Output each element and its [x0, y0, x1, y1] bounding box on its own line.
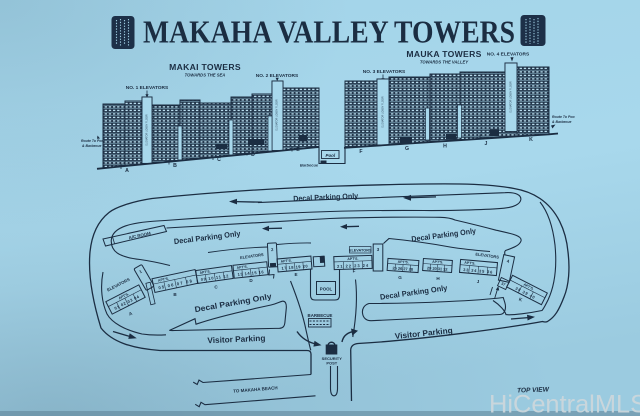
svg-text:G: G: [405, 146, 409, 152]
svg-text:NO. 3 ELEVATORS: NO. 3 ELEVATORS: [363, 69, 406, 75]
svg-text:Pool: Pool: [326, 153, 336, 158]
svg-text:BARBECUE: BARBECUE: [308, 313, 333, 318]
svg-text:MAUKA TOWERS: MAUKA TOWERS: [406, 49, 481, 59]
svg-text:F: F: [359, 149, 362, 155]
svg-text:TOWARDS THE SEA: TOWARDS THE SEA: [185, 73, 226, 78]
svg-text:E: E: [296, 147, 300, 153]
svg-text:E: E: [294, 272, 297, 277]
svg-text:& Barbecue: & Barbecue: [552, 120, 572, 124]
svg-text:H: H: [443, 144, 447, 150]
svg-text:Route To Poo: Route To Poo: [552, 115, 575, 119]
svg-text:C: C: [217, 157, 221, 163]
svg-text:Barbecue: Barbecue: [300, 163, 319, 168]
svg-text:A: A: [125, 168, 129, 174]
svg-text:ELEVATOR LOBBY FLOOR: ELEVATOR LOBBY FLOOR: [276, 99, 279, 130]
svg-text:HiCentralMLS: HiCentralMLS: [489, 391, 640, 416]
svg-text:B: B: [173, 163, 177, 169]
svg-text:F: F: [353, 269, 356, 274]
svg-text:POST: POST: [326, 361, 337, 366]
svg-text:ELEVATORS: ELEVATORS: [349, 249, 372, 253]
svg-text:D: D: [251, 152, 255, 158]
svg-text:APT'S.: APT'S.: [432, 260, 443, 265]
svg-text:NO. 4 ELEVATORS: NO. 4 ELEVATORS: [487, 52, 530, 58]
svg-text:G: G: [398, 275, 402, 280]
svg-text:& Barbecue: & Barbecue: [82, 144, 102, 148]
svg-text:NO. 1 ELEVATORS: NO. 1 ELEVATORS: [126, 85, 169, 91]
svg-text:Route To Pool: Route To Pool: [81, 139, 106, 143]
svg-text:APT'S.: APT'S.: [398, 260, 409, 265]
svg-text:MAKAHA VALLEY TOWERS: MAKAHA VALLEY TOWERS: [143, 14, 515, 50]
svg-text:MAKAI TOWERS: MAKAI TOWERS: [169, 62, 241, 72]
svg-text:ELEVATOR LOBBY FLOOR: ELEVATOR LOBBY FLOOR: [145, 114, 148, 145]
svg-text:J: J: [485, 141, 488, 147]
svg-text:ELEVATOR LOBBY FLOOR: ELEVATOR LOBBY FLOOR: [381, 96, 384, 127]
svg-text:J: J: [477, 279, 480, 284]
svg-text:APT'S.: APT'S.: [347, 257, 358, 261]
svg-text:POOL: POOL: [320, 287, 333, 292]
svg-text:K: K: [529, 137, 533, 143]
svg-text:TOWARDS THE VALLEY: TOWARDS THE VALLEY: [420, 60, 469, 65]
svg-text:ELEVATOR LOBBY FLOOR: ELEVATOR LOBBY FLOOR: [509, 81, 512, 112]
